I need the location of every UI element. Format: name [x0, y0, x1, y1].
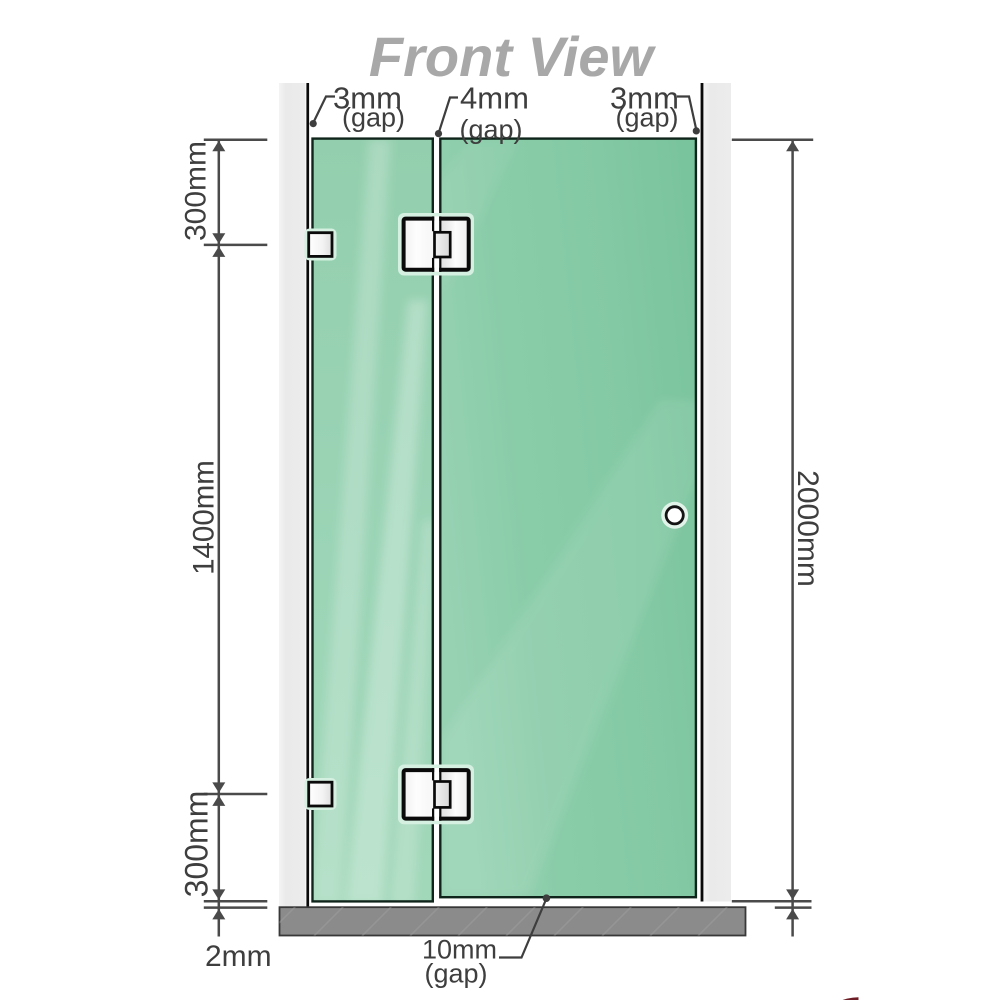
svg-text:(gap): (gap)	[342, 103, 405, 133]
svg-text:1400mm: 1400mm	[188, 460, 221, 575]
svg-text:2000mm: 2000mm	[791, 470, 824, 587]
svg-text:300mm: 300mm	[178, 791, 214, 898]
svg-text:(gap): (gap)	[459, 115, 522, 145]
svg-text:2mm: 2mm	[205, 940, 272, 973]
svg-text:300mm: 300mm	[180, 141, 213, 241]
svg-text:(gap): (gap)	[424, 959, 487, 989]
svg-text:4mm: 4mm	[460, 81, 529, 116]
svg-text:Front View: Front View	[369, 25, 657, 88]
svg-text:(gap): (gap)	[615, 103, 678, 133]
